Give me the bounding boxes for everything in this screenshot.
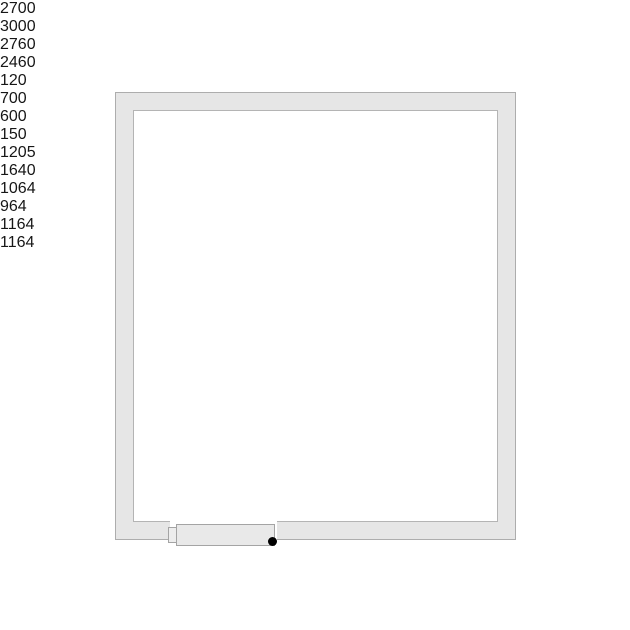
dim-wall-thickness-label: 120	[0, 72, 630, 90]
shelf-left-bottom-cap	[139, 457, 191, 462]
dim-outer-width-label: 2700	[0, 0, 630, 18]
dim-door-witness-left	[172, 548, 173, 574]
shelf-top-divider	[313, 113, 323, 163]
door-leaf	[176, 524, 275, 546]
shelf-left-divider	[139, 320, 191, 327]
shelf-top-left-cap	[139, 113, 144, 163]
floor-plan-canvas: 2700 3000 2760 2460 120 700 600 150 1205…	[0, 0, 630, 630]
dim-outer-width-witness-left	[115, 66, 116, 90]
dim-outer-height-line	[85, 93, 86, 539]
dim-monoblock-width-line	[113, 566, 168, 567]
dim-outer-height-witness-bottom	[88, 539, 114, 540]
dim-door-line	[172, 562, 276, 563]
dim-inner-height-line	[425, 113, 426, 517]
shelf-top-right-cap	[490, 113, 495, 163]
dim-outer-width-line	[116, 63, 515, 64]
shelf-right-divider	[442, 336, 495, 343]
dim-outer-height-witness-top	[88, 92, 114, 93]
shelf-right-bottom-cap	[442, 508, 495, 513]
dim-door-witness-right	[276, 547, 277, 574]
dim-monoblock-protrusion-line	[85, 533, 86, 555]
monoblock-unit	[112, 516, 168, 556]
dim-inner-height-label: 2760	[0, 36, 630, 54]
dim-wall-thickness-line	[498, 515, 516, 516]
dim-outer-height-label: 3000	[0, 18, 630, 36]
dim-outer-width-witness-right	[515, 66, 516, 90]
dim-inner-width-line	[134, 503, 497, 504]
shelf-right-top-cap	[442, 166, 495, 171]
dim-wall-thickness-tail	[516, 515, 522, 516]
shelf-left-top-cap	[139, 166, 191, 171]
door-hinge-dot	[268, 537, 277, 546]
